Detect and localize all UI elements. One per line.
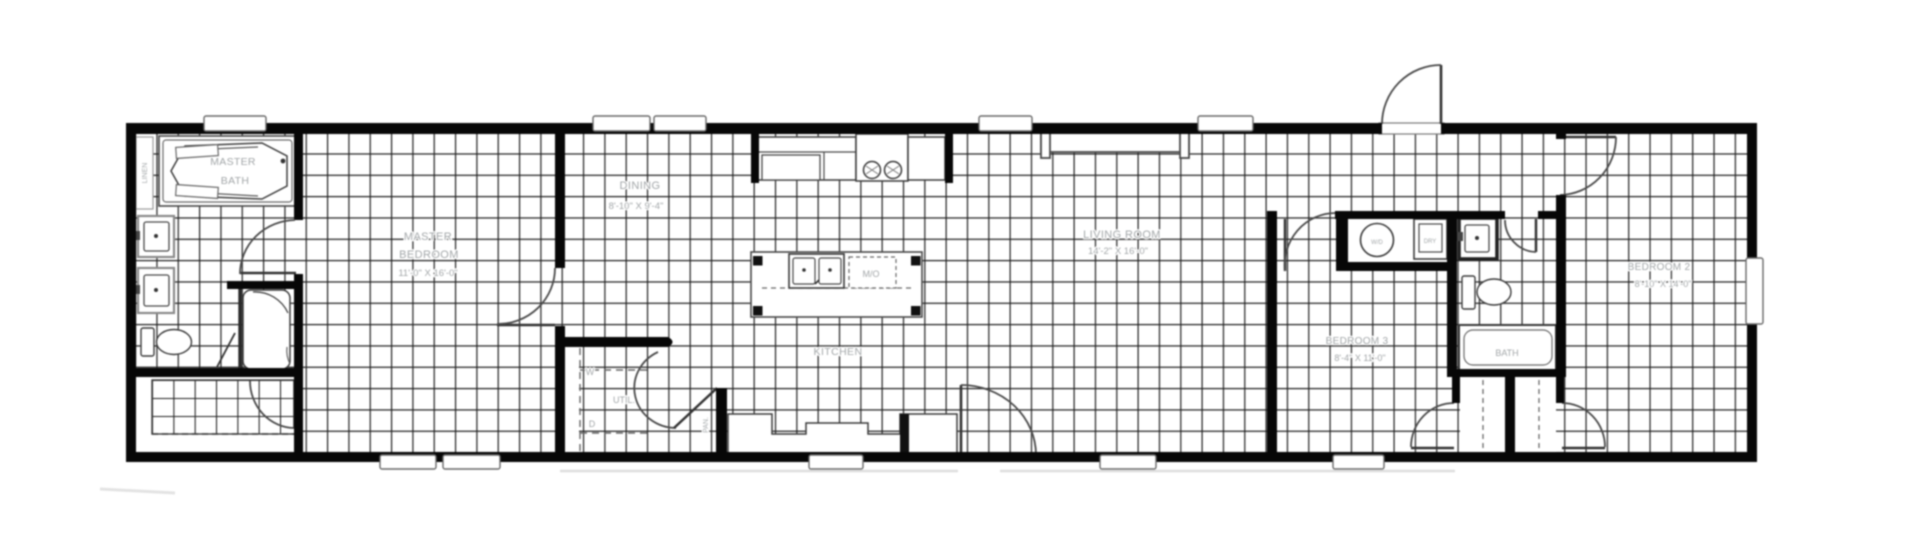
svg-text:8'-10" X 14'-0": 8'-10" X 14'-0": [1635, 279, 1692, 289]
svg-text:8'-10" X 9'-4": 8'-10" X 9'-4": [609, 201, 664, 212]
svg-text:M/O: M/O: [863, 269, 880, 279]
svg-text:BEDROOM 2: BEDROOM 2: [1628, 262, 1691, 273]
svg-text:DRY: DRY: [1424, 239, 1437, 245]
svg-text:MASTER: MASTER: [210, 156, 256, 168]
svg-text:PAN.: PAN.: [703, 417, 710, 433]
svg-text:MASTER: MASTER: [404, 231, 452, 243]
svg-text:D: D: [589, 419, 596, 429]
svg-text:BATH: BATH: [1495, 348, 1518, 358]
svg-text:UTIL.: UTIL.: [613, 395, 635, 405]
svg-text:W/D: W/D: [1371, 240, 1383, 246]
svg-text:8'-4" X 11'-0": 8'-4" X 11'-0": [1334, 353, 1385, 363]
svg-text:LIVING ROOM: LIVING ROOM: [1083, 229, 1161, 241]
svg-text:DINING: DINING: [620, 180, 661, 192]
svg-text:14'-2" X 16'-0": 14'-2" X 16'-0": [1088, 246, 1148, 257]
svg-text:KITCHEN: KITCHEN: [814, 346, 863, 358]
svg-text:W: W: [586, 367, 595, 377]
svg-text:BEDROOM: BEDROOM: [399, 249, 459, 261]
svg-text:BATH: BATH: [221, 175, 249, 187]
svg-text:11'-0" X 16'-0": 11'-0" X 16'-0": [398, 268, 457, 279]
svg-text:LINEN: LINEN: [142, 163, 149, 184]
svg-text:BEDROOM 3: BEDROOM 3: [1326, 336, 1389, 347]
